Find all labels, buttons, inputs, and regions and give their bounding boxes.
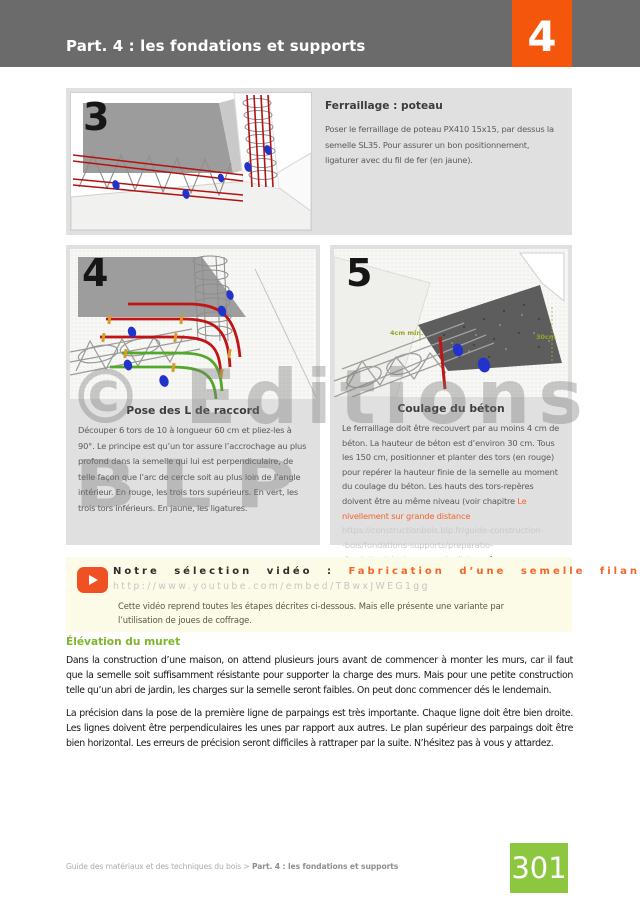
breadcrumb: Guide des matériaux et des techniques du… xyxy=(66,862,398,871)
play-triangle-icon xyxy=(89,575,98,585)
step5-body: Le ferraillage doit être recouvert par a… xyxy=(330,421,572,567)
step5-body-text: Le ferraillage doit être recouvert par a… xyxy=(342,423,559,506)
page-title: Part. 4 : les fondations et supports xyxy=(66,37,365,55)
step3-text: Ferraillage : poteau Poser le ferraillag… xyxy=(325,96,559,169)
chapter-number: 4 xyxy=(527,16,556,58)
step3-panel: 3 Ferraillage : poteau Poser le ferraill… xyxy=(66,88,572,235)
youtube-play-icon[interactable] xyxy=(77,567,108,593)
section-heading: Élévation du muret xyxy=(66,636,180,648)
page-header: Part. 4 : les fondations et supports 4 xyxy=(0,0,640,67)
section-paragraph-1: Dans la construction d’une maison, on at… xyxy=(66,653,573,699)
step3-illustration: 3 xyxy=(70,92,312,231)
step5-annotation-dim2: 30cm xyxy=(536,333,556,341)
step3-number: 3 xyxy=(83,95,109,139)
video-title-link[interactable]: Fabrication d’une semelle filante xyxy=(349,566,640,577)
step5-illustration: 4cm min. 30cm 5 xyxy=(334,249,568,397)
page-number: 301 xyxy=(511,854,566,883)
section-paragraph-2: La précision dans la pose de la première… xyxy=(66,706,573,752)
step5-number: 5 xyxy=(346,251,372,295)
video-label: Notre sélection vidéo : xyxy=(113,566,334,577)
step3-body: Poser le ferraillage de poteau PX410 15x… xyxy=(325,122,559,169)
step3-title: Ferraillage : poteau xyxy=(325,100,559,112)
chapter-badge: 4 xyxy=(512,0,572,67)
step5-link-url-line2[interactable]: -bois/fondations-supports/preparatio- xyxy=(342,538,560,553)
book-page: Part. 4 : les fondations et supports 4 xyxy=(0,0,640,898)
video-label-line: Notre sélection vidéo : Fabrication d’un… xyxy=(113,566,640,577)
page-number-badge: 301 xyxy=(510,843,568,893)
step4-panel: 4 Pose des L de raccord Découper 6 tors … xyxy=(66,245,320,545)
step5-caption: Coulage du béton xyxy=(330,402,572,415)
step5-link-url-line1[interactable]: https://constructionbois.blp.fr/guide-co… xyxy=(342,523,560,538)
video-selection-box: Notre sélection vidéo : Fabrication d’un… xyxy=(66,557,572,632)
step4-caption: Pose des L de raccord xyxy=(66,404,320,417)
step5-annotation-dim1: 4cm min. xyxy=(390,329,424,337)
step4-body: Découper 6 tors de 10 à longueur 60 cm e… xyxy=(66,423,320,517)
video-description: Cette vidéo reprend toutes les étapes dé… xyxy=(118,600,510,627)
video-url-link[interactable]: http://www.youtube.com/embed/TBwxJWEG1gg xyxy=(113,581,430,592)
step5-panel: 4cm min. 30cm 5 Coulage du béton Le ferr… xyxy=(330,245,572,545)
breadcrumb-guide: Guide des matériaux et des techniques du… xyxy=(66,862,252,871)
step4-number: 4 xyxy=(82,251,108,295)
step4-illustration: 4 xyxy=(70,249,316,399)
breadcrumb-part: Part. 4 : les fondations et supports xyxy=(252,862,398,871)
